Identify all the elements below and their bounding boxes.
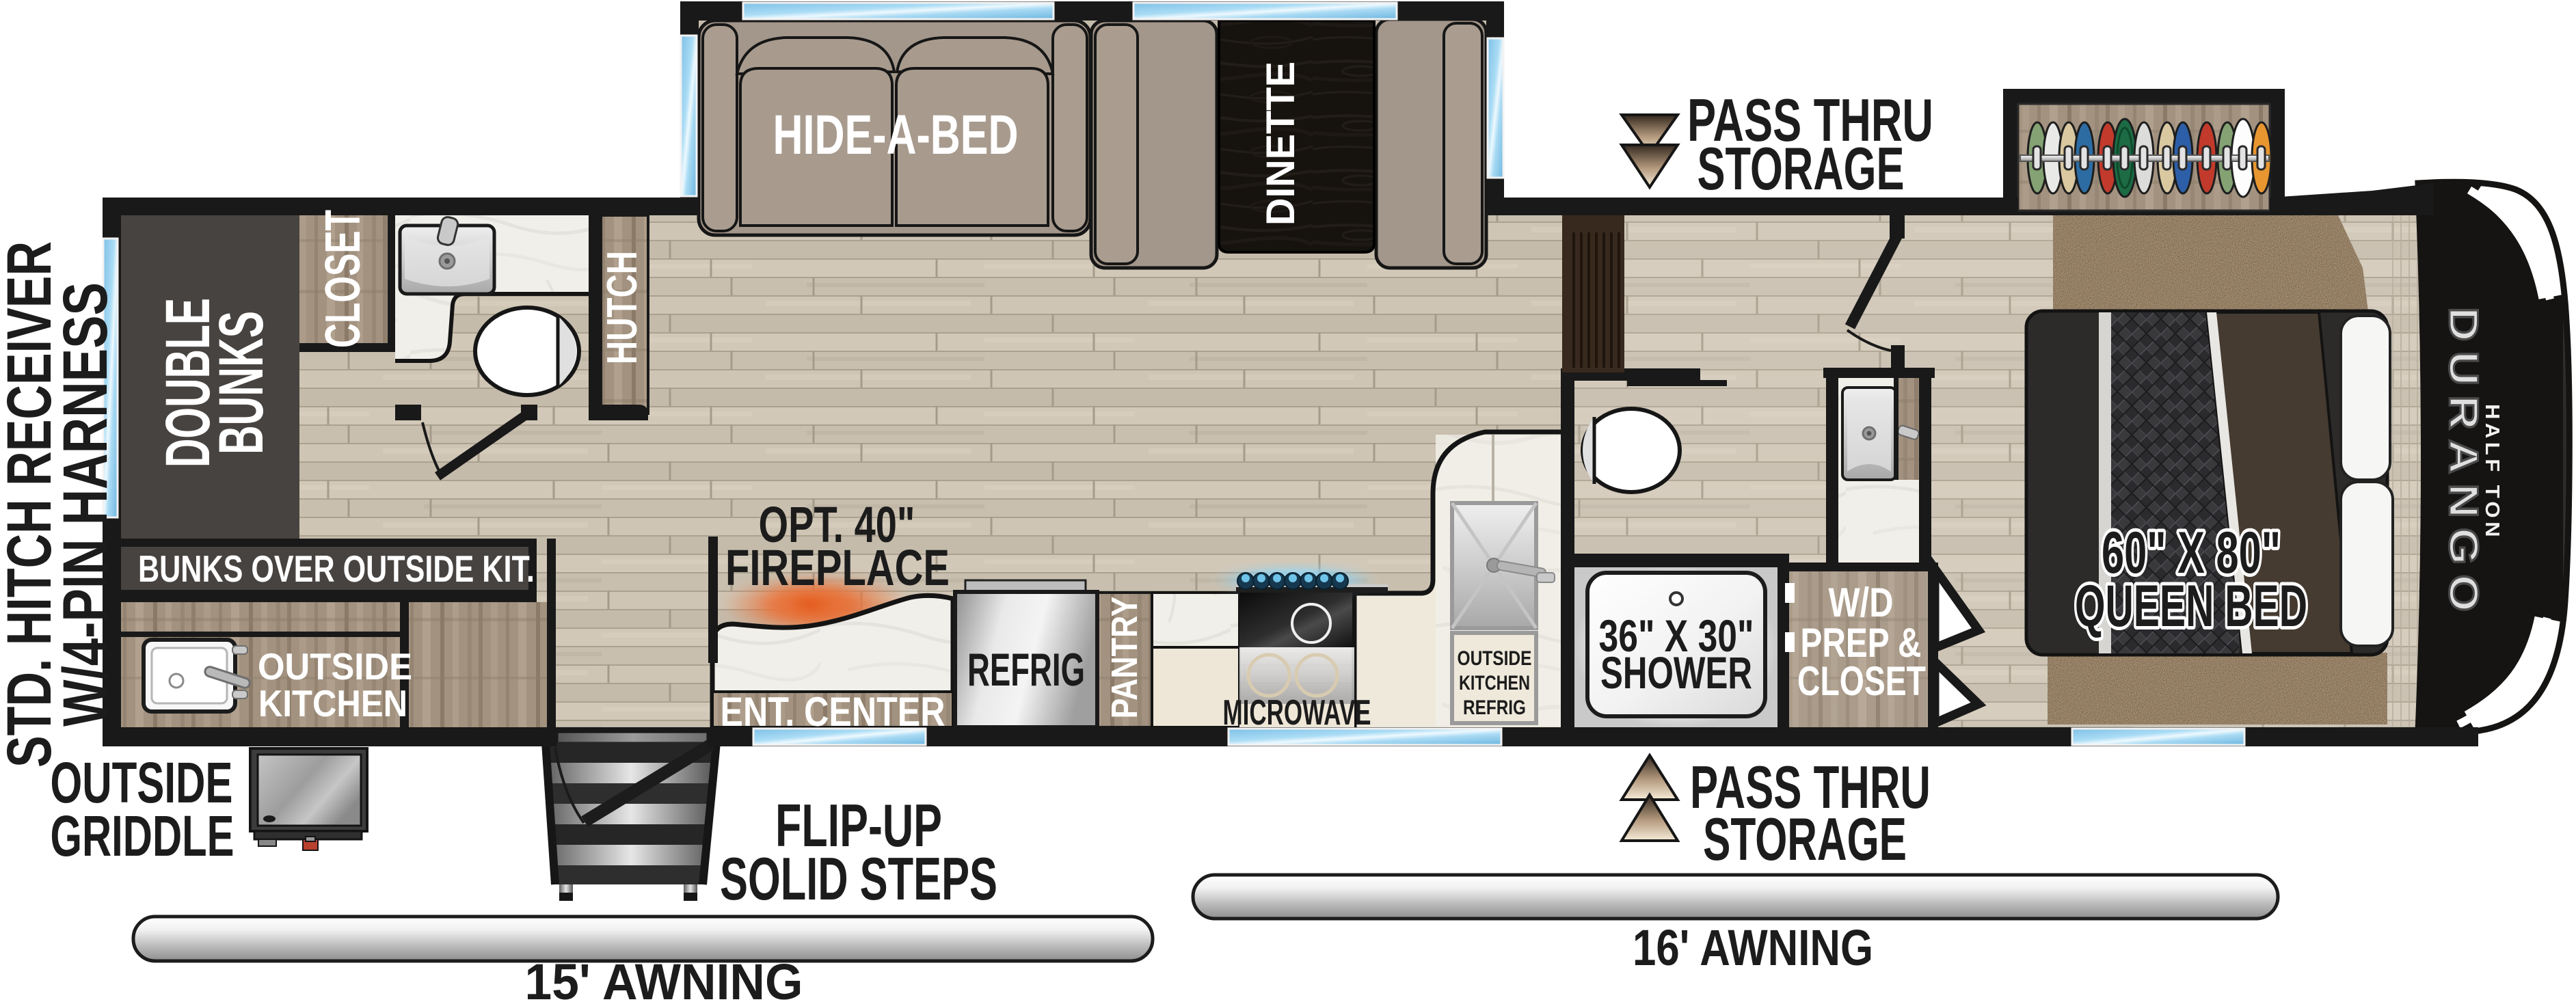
svg-text:PANTRY: PANTRY: [1104, 597, 1145, 719]
svg-text:15' AWNING: 15' AWNING: [525, 953, 803, 1002]
svg-text:REFRIG: REFRIG: [1463, 696, 1526, 719]
svg-text:STORAGE: STORAGE: [1703, 805, 1907, 873]
svg-text:STORAGE: STORAGE: [1698, 135, 1905, 202]
svg-text:HUTCH: HUTCH: [599, 251, 646, 364]
svg-text:OUTSIDE: OUTSIDE: [1458, 647, 1532, 670]
svg-text:BUNKS: BUNKS: [206, 311, 276, 455]
svg-text:DURANGO: DURANGO: [2441, 307, 2486, 621]
svg-text:BUNKS OVER OUTSIDE KIT.: BUNKS OVER OUTSIDE KIT.: [138, 547, 535, 590]
svg-text:W/4-PIN HARNESS: W/4-PIN HARNESS: [51, 282, 120, 727]
svg-text:OUTSIDE: OUTSIDE: [258, 645, 412, 688]
svg-text:16' AWNING: 16' AWNING: [1633, 919, 1873, 976]
svg-text:KITCHEN: KITCHEN: [1459, 672, 1530, 694]
svg-text:ENT. CENTER: ENT. CENTER: [721, 689, 945, 735]
svg-text:CLOSET: CLOSET: [1797, 658, 1926, 704]
svg-text:HIDE-A-BED: HIDE-A-BED: [773, 104, 1019, 166]
svg-text:REFRIG: REFRIG: [967, 644, 1085, 696]
svg-text:QUEEN BED: QUEEN BED: [2075, 573, 2307, 639]
svg-text:CLOSET: CLOSET: [316, 210, 371, 348]
svg-text:W/D: W/D: [1829, 580, 1894, 625]
svg-text:DINETTE: DINETTE: [1259, 62, 1303, 226]
svg-text:SHOWER: SHOWER: [1600, 647, 1752, 698]
svg-text:MICROWAVE: MICROWAVE: [1223, 693, 1371, 733]
svg-text:KITCHEN: KITCHEN: [258, 682, 407, 725]
svg-text:FIREPLACE: FIREPLACE: [725, 539, 950, 596]
svg-text:SOLID STEPS: SOLID STEPS: [720, 845, 997, 912]
svg-text:HALF TON: HALF TON: [2481, 404, 2503, 541]
svg-text:GRIDDLE: GRIDDLE: [51, 804, 234, 868]
